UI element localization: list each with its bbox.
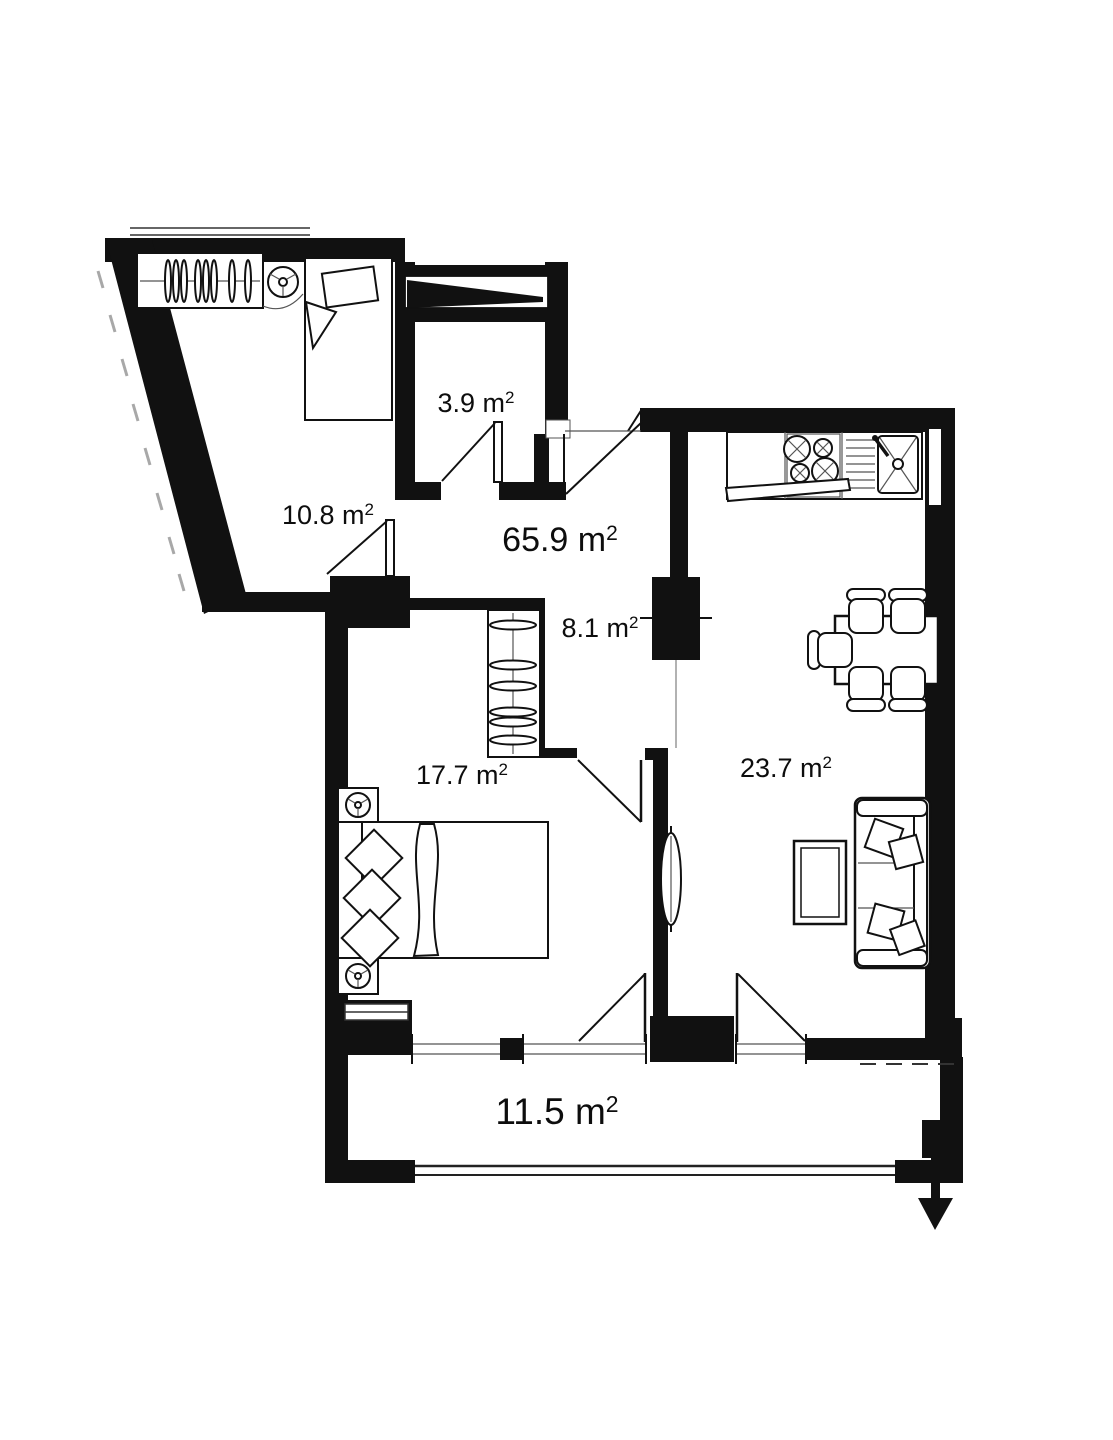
room-label-bedroom-small: 10.8 m2 — [282, 500, 374, 530]
dining-chair — [889, 667, 927, 711]
storage-closet — [405, 276, 548, 308]
door-bedroom-main — [578, 760, 641, 822]
room-label-balcony: 11.5 m2 — [495, 1091, 618, 1132]
entrance-door — [564, 421, 643, 494]
sofa — [855, 798, 930, 968]
balcony-railing — [415, 1166, 895, 1175]
double-bed — [338, 822, 548, 966]
room-label-hallway: 8.1 m2 — [562, 613, 639, 643]
dining-set — [808, 589, 938, 711]
dining-armchair — [808, 631, 852, 669]
room-label-total-area: 65.9 m2 — [502, 521, 618, 559]
dining-chair — [889, 589, 927, 633]
balcony-door-living — [737, 973, 805, 1042]
door-entry-storage — [442, 422, 502, 482]
dining-chair — [847, 667, 885, 711]
wardrobe-main-bedroom — [488, 610, 540, 757]
room-label-entry-storage: 3.9 m2 — [438, 388, 515, 418]
ceiling-lamp-icon — [263, 267, 303, 309]
nightstand-top — [338, 788, 378, 822]
single-bed — [305, 258, 392, 420]
dining-chair — [847, 589, 885, 633]
wardrobe-small-bedroom — [137, 253, 263, 308]
room-label-living-room: 23.7 m2 — [740, 753, 832, 783]
floor-plan-drawing: 3.9 m2 10.8 m2 65.9 m2 8.1 m2 17.7 m2 23… — [0, 0, 1113, 1440]
room-label-bedroom-main: 17.7 m2 — [416, 760, 508, 790]
floor-plan-canvas: 3.9 m2 10.8 m2 65.9 m2 8.1 m2 17.7 m2 23… — [0, 0, 1113, 1440]
balcony-door-bedroom — [579, 973, 645, 1042]
coffee-table — [794, 841, 846, 924]
